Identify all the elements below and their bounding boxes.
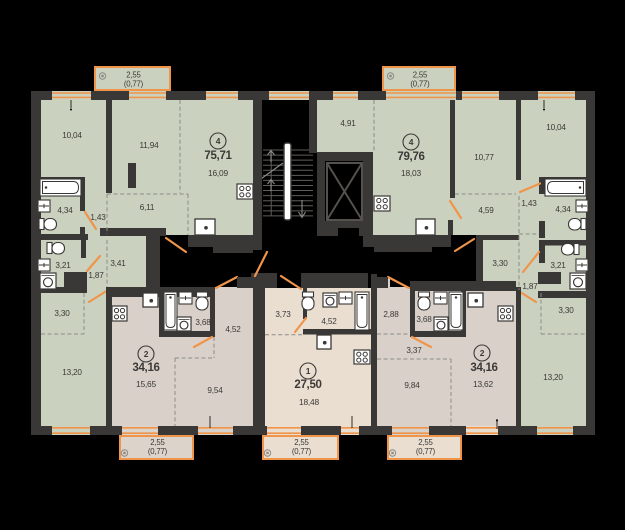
svg-text:9,84: 9,84 — [404, 381, 420, 390]
svg-text:(0,77): (0,77) — [416, 447, 436, 456]
svg-text:2,55: 2,55 — [413, 71, 428, 80]
svg-text:4: 4 — [216, 136, 221, 146]
svg-text:9,54: 9,54 — [207, 386, 223, 395]
svg-text:2,88: 2,88 — [383, 310, 399, 319]
svg-text:3,30: 3,30 — [558, 306, 574, 315]
svg-text:(0,77): (0,77) — [292, 447, 312, 456]
svg-text:10,04: 10,04 — [546, 123, 566, 132]
svg-text:3,73: 3,73 — [275, 310, 291, 319]
svg-text:16,09: 16,09 — [208, 168, 229, 178]
svg-text:4,34: 4,34 — [555, 205, 571, 214]
svg-text:2: 2 — [480, 348, 485, 358]
svg-text:1,43: 1,43 — [521, 199, 537, 208]
svg-text:4,34: 4,34 — [57, 206, 73, 215]
svg-text:75,71: 75,71 — [204, 150, 232, 162]
svg-text:4,59: 4,59 — [478, 206, 494, 215]
svg-text:(0,77): (0,77) — [148, 447, 168, 456]
svg-text:10,04: 10,04 — [62, 131, 82, 140]
svg-text:(0,77): (0,77) — [410, 80, 430, 89]
svg-text:1: 1 — [306, 366, 311, 376]
svg-text:2,55: 2,55 — [126, 71, 141, 80]
svg-text:6,11: 6,11 — [140, 203, 155, 212]
svg-text:18,03: 18,03 — [401, 168, 422, 178]
svg-text:4,91: 4,91 — [340, 119, 356, 128]
svg-text:79,76: 79,76 — [397, 151, 424, 163]
svg-text:1,87: 1,87 — [88, 271, 104, 280]
svg-text:(0,77): (0,77) — [124, 80, 144, 89]
svg-text:4,52: 4,52 — [321, 317, 337, 326]
svg-text:3,21: 3,21 — [55, 261, 71, 270]
svg-text:1,87: 1,87 — [522, 282, 538, 291]
svg-text:34,16: 34,16 — [470, 362, 497, 374]
svg-text:13,62: 13,62 — [473, 379, 494, 389]
svg-text:10,77: 10,77 — [474, 153, 494, 162]
svg-text:2,55: 2,55 — [418, 438, 433, 447]
svg-text:4,52: 4,52 — [225, 325, 241, 334]
svg-text:3,30: 3,30 — [54, 309, 70, 318]
svg-text:1,43: 1,43 — [90, 213, 106, 222]
svg-text:11,94: 11,94 — [140, 141, 160, 150]
svg-text:2,55: 2,55 — [294, 438, 309, 447]
svg-text:3,68: 3,68 — [195, 318, 211, 327]
svg-text:18,48: 18,48 — [299, 397, 320, 407]
svg-text:2: 2 — [144, 349, 149, 359]
svg-text:3,68: 3,68 — [416, 315, 432, 324]
svg-text:13,20: 13,20 — [62, 368, 82, 377]
svg-text:3,37: 3,37 — [406, 346, 422, 355]
svg-text:3,30: 3,30 — [492, 259, 508, 268]
svg-text:3,21: 3,21 — [550, 261, 566, 270]
svg-text:13,20: 13,20 — [543, 373, 563, 382]
svg-text:4: 4 — [409, 137, 414, 147]
svg-text:34,16: 34,16 — [132, 362, 159, 374]
svg-text:2,55: 2,55 — [150, 438, 165, 447]
svg-text:27,50: 27,50 — [294, 379, 321, 391]
svg-text:3,41: 3,41 — [110, 259, 126, 268]
svg-text:15,65: 15,65 — [136, 379, 157, 389]
